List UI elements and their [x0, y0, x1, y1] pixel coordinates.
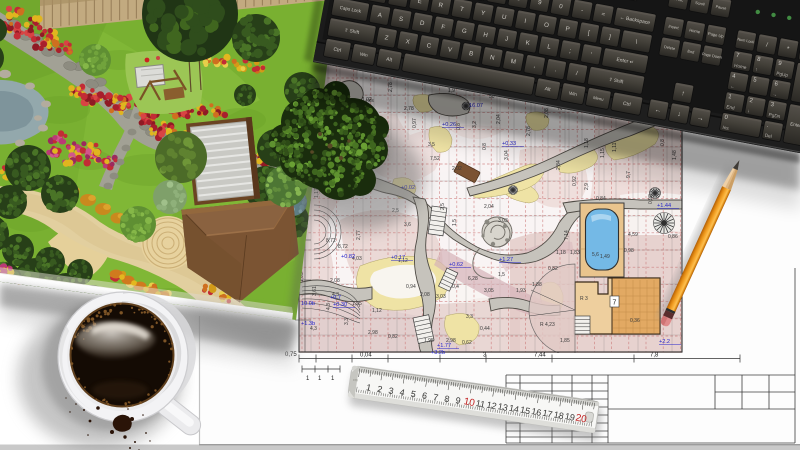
svg-text:0,62: 0,62	[462, 340, 472, 346]
svg-text:0,98: 0,98	[624, 248, 634, 254]
svg-text:+0.82: +0.82	[341, 254, 355, 260]
svg-text:+0.30: +0.30	[333, 302, 347, 308]
svg-text:7,8: 7,8	[650, 353, 659, 359]
svg-text:16: 16	[530, 406, 542, 418]
svg-text:1,93: 1,93	[516, 288, 526, 294]
svg-text:0,44: 0,44	[480, 326, 490, 332]
svg-text:3,03: 3,03	[498, 218, 508, 224]
svg-text:7,52: 7,52	[430, 156, 440, 162]
svg-text:2,5: 2,5	[440, 203, 446, 210]
svg-text:+0.62: +0.62	[449, 262, 463, 268]
svg-text:7: 7	[613, 300, 617, 307]
svg-text:→: →	[696, 114, 704, 122]
svg-text:3,3: 3,3	[466, 314, 473, 320]
svg-text:2,08: 2,08	[330, 278, 340, 284]
svg-text:5,6: 5,6	[592, 252, 599, 258]
svg-text:←: ←	[654, 106, 662, 114]
svg-text:1,5: 1,5	[452, 219, 458, 226]
svg-text:3,61: 3,61	[312, 286, 318, 296]
svg-text:0,04: 0,04	[360, 353, 372, 359]
svg-text:10.0b: 10.0b	[301, 301, 315, 307]
svg-text:+1.27: +1.27	[499, 257, 513, 263]
svg-text:8,72: 8,72	[338, 244, 348, 250]
svg-text:12: 12	[486, 400, 498, 412]
svg-text:17: 17	[542, 408, 554, 420]
svg-text:1,95: 1,95	[352, 301, 362, 307]
svg-text:3,05: 3,05	[484, 288, 494, 294]
svg-text:←: ←	[730, 84, 736, 90]
svg-text:14: 14	[508, 403, 520, 415]
svg-text:1,83: 1,83	[570, 250, 580, 256]
svg-text:8,72: 8,72	[326, 238, 336, 244]
svg-text:R 3: R 3	[580, 296, 588, 302]
svg-text:cm: cm	[353, 378, 358, 383]
svg-text:1,49: 1,49	[600, 254, 610, 260]
svg-text:+1.3b: +1.3b	[301, 321, 315, 327]
svg-text:15: 15	[519, 404, 531, 416]
svg-text:1,95: 1,95	[424, 338, 434, 344]
svg-text:3,3: 3,3	[344, 318, 350, 325]
svg-text:1,12: 1,12	[372, 308, 382, 314]
svg-text:0,4: 0,4	[452, 284, 459, 290]
svg-text:1,88: 1,88	[532, 282, 542, 288]
svg-text:3,5: 3,5	[428, 142, 435, 148]
svg-text:+0.7: +0.7	[330, 295, 341, 301]
svg-text:1,18: 1,18	[556, 250, 566, 256]
svg-text:+0.17: +0.17	[391, 255, 405, 261]
svg-text:+3.2b: +3.2b	[431, 350, 445, 356]
svg-text:18: 18	[553, 409, 565, 421]
svg-text:0,36: 0,36	[630, 318, 640, 324]
svg-text:3,03: 3,03	[436, 294, 446, 300]
svg-text:6,28: 6,28	[468, 276, 478, 282]
svg-text:2,9: 2,9	[584, 183, 590, 190]
svg-text:2,08: 2,08	[420, 292, 430, 298]
svg-text:0,82: 0,82	[548, 266, 558, 272]
svg-text:0,98: 0,98	[648, 194, 654, 204]
svg-text:13: 13	[497, 401, 509, 413]
svg-text:0,86: 0,86	[668, 234, 678, 240]
svg-text:+2.2: +2.2	[659, 339, 670, 345]
svg-text:0,92: 0,92	[572, 176, 578, 186]
svg-text:1,5: 1,5	[498, 272, 505, 278]
svg-text:2,02: 2,02	[452, 166, 462, 172]
svg-text:+1.77: +1.77	[437, 343, 451, 349]
svg-text:2,98: 2,98	[368, 330, 378, 336]
svg-text:2,04: 2,04	[484, 204, 494, 210]
svg-text:4,59: 4,59	[628, 232, 638, 238]
svg-text:+1.44: +1.44	[657, 203, 671, 209]
svg-text:2,77: 2,77	[356, 230, 362, 240]
svg-text:3,6: 3,6	[404, 222, 411, 228]
svg-text:7,14: 7,14	[564, 230, 570, 240]
svg-text:4,3: 4,3	[326, 303, 332, 310]
svg-text:11: 11	[475, 398, 486, 410]
svg-text:7,44: 7,44	[534, 353, 546, 359]
svg-text:1,85: 1,85	[560, 338, 570, 344]
svg-text:0,94: 0,94	[406, 284, 416, 290]
svg-text:0,82: 0,82	[388, 334, 398, 340]
svg-text:0,84: 0,84	[596, 196, 606, 202]
svg-text:→: →	[772, 91, 778, 97]
svg-text:R 4,23: R 4,23	[540, 322, 555, 328]
